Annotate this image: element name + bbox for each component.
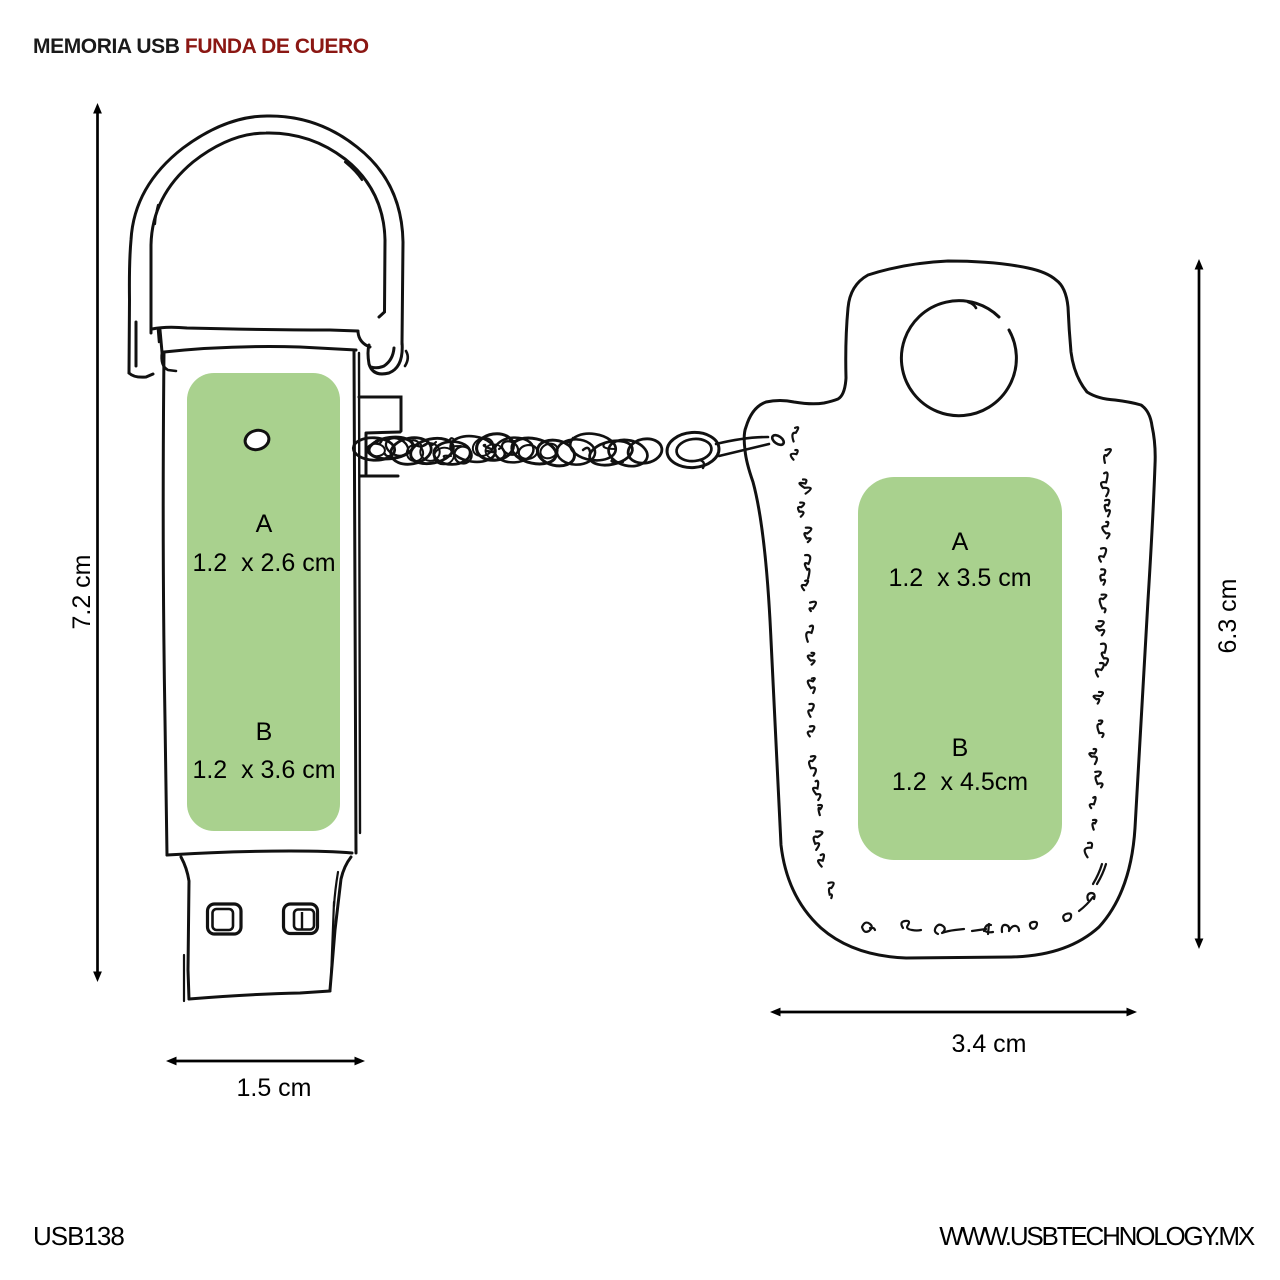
svg-text:1.2 x 3.6 cm: 1.2 x 3.6 cm xyxy=(192,756,335,784)
svg-text:A: A xyxy=(952,528,969,556)
svg-text:1.2 x 3.5 cm: 1.2 x 3.5 cm xyxy=(888,564,1031,592)
svg-text:A: A xyxy=(256,510,273,538)
svg-text:3.4 cm: 3.4 cm xyxy=(951,1030,1026,1058)
svg-text:1.5 cm: 1.5 cm xyxy=(236,1074,311,1102)
svg-text:B: B xyxy=(256,718,273,746)
svg-text:MEMORIA USB FUNDA DE CUERO: MEMORIA USB FUNDA DE CUERO xyxy=(33,35,369,58)
svg-text:B: B xyxy=(952,734,969,762)
svg-text:WWW.USBTECHNOLOGY.MX: WWW.USBTECHNOLOGY.MX xyxy=(939,1221,1255,1251)
svg-text:USB138: USB138 xyxy=(33,1221,124,1251)
svg-text:7.2 cm: 7.2 cm xyxy=(68,554,96,629)
svg-text:1.2 x 2.6 cm: 1.2 x 2.6 cm xyxy=(192,549,335,577)
svg-text:1.2 x 4.5cm: 1.2 x 4.5cm xyxy=(892,768,1028,796)
svg-text:6.3 cm: 6.3 cm xyxy=(1214,578,1242,653)
